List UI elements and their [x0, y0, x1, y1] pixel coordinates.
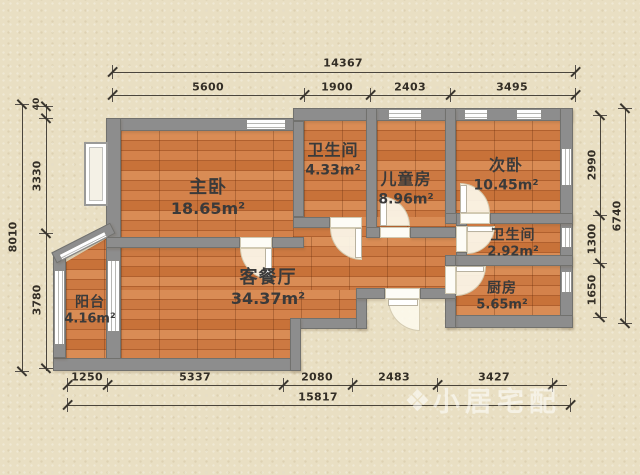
dim-tick — [15, 104, 29, 105]
dim-tick — [39, 118, 53, 119]
door-opening — [445, 266, 456, 294]
dim-line-left-total — [22, 104, 23, 371]
room-name: 厨房 — [476, 279, 527, 297]
room-area: 4.33m² — [305, 161, 360, 179]
room-label-bathroom-1: 卫生间 4.33m² — [305, 141, 360, 180]
dim-line-right-total — [625, 108, 626, 323]
dim-tick — [112, 65, 113, 79]
room-name: 卫生间 — [487, 226, 538, 244]
dim-tick — [352, 378, 353, 392]
window — [561, 271, 572, 293]
door-opening — [240, 237, 272, 248]
dim-line-left-segments — [46, 104, 47, 371]
dim-tick — [107, 378, 108, 392]
wall-children-right — [445, 108, 456, 217]
room-name: 主卧 — [171, 176, 245, 199]
room-label-balcony: 阳台 4.16m² — [64, 293, 115, 328]
wall-bottom-left — [53, 358, 301, 371]
floor-plan: 主卧 18.65m² 卫生间 4.33m² 儿童房 8.96m² 次卧 10.4… — [0, 0, 640, 475]
room-area: 8.96m² — [378, 190, 433, 208]
wall-entry-top-a — [356, 288, 385, 299]
wall-second-bottom-b — [490, 213, 573, 224]
room-label-living-dining: 客餐厅 34.37m² — [231, 266, 305, 310]
room-area: 5.65m² — [476, 298, 527, 315]
wall-children-bottom-b — [410, 227, 456, 238]
dim-label-left-total: 8010 — [7, 222, 20, 253]
dim-tick — [39, 368, 53, 369]
door-opening — [456, 226, 467, 252]
dim-tick — [593, 215, 607, 216]
room-area: 4.16m² — [64, 312, 115, 329]
dim-tick — [67, 378, 68, 392]
door-leaf — [355, 228, 362, 258]
room-name: 卫生间 — [305, 141, 360, 162]
dim-label: 3495 — [496, 81, 528, 94]
wall-master-right — [293, 121, 304, 217]
room-name: 儿童房 — [378, 170, 433, 191]
wall-bathroom1-right — [366, 108, 377, 228]
door-leaf — [460, 185, 467, 213]
dim-label-right-total: 6740 — [611, 201, 624, 232]
dim-tick — [618, 323, 632, 324]
room-label-children-room: 儿童房 8.96m² — [378, 170, 433, 209]
room-label-second-bedroom: 次卧 10.45m² — [473, 156, 538, 195]
room-label-master-bedroom: 主卧 18.65m² — [171, 176, 245, 220]
dim-label: 5337 — [179, 371, 211, 384]
dim-label: 2080 — [301, 371, 333, 384]
dim-label: 3780 — [31, 285, 44, 316]
window — [246, 119, 286, 130]
window — [561, 148, 572, 186]
room-name: 次卧 — [473, 156, 538, 177]
dim-tick — [15, 371, 29, 372]
dim-label: 1250 — [71, 371, 103, 384]
dim-tick — [283, 378, 284, 392]
wall-kitchen-left-a — [445, 255, 456, 266]
door-opening — [380, 227, 410, 238]
dim-tick — [570, 398, 571, 412]
wall-master-bottom-b — [272, 237, 304, 248]
dim-label: 2990 — [586, 150, 599, 181]
room-area: 18.65m² — [171, 199, 245, 220]
dim-label: 2403 — [394, 81, 426, 94]
room-label-bathroom-2: 卫生间 2.92m² — [487, 226, 538, 261]
dim-label: 1650 — [586, 275, 599, 306]
door-opening — [460, 213, 490, 224]
dim-tick — [618, 108, 632, 109]
dim-tick — [370, 88, 371, 102]
dim-label: 1300 — [586, 224, 599, 255]
room-area: 10.45m² — [473, 176, 538, 194]
entrance-door-leaf — [388, 299, 418, 306]
wall-entry-step-left — [290, 318, 301, 371]
window — [516, 109, 542, 120]
door-opening — [330, 217, 362, 228]
wall-master-bottom-a — [106, 237, 240, 248]
watermark: ❖小居宅配 — [404, 380, 561, 419]
room-area: 2.92m² — [487, 245, 538, 262]
dim-line-top-total — [112, 72, 575, 73]
wall-children-bottom-a — [366, 227, 380, 238]
dim-tick — [112, 88, 113, 102]
room-label-kitchen: 厨房 5.65m² — [476, 279, 527, 314]
window — [464, 109, 488, 120]
dim-tick — [450, 88, 451, 102]
bay-window — [84, 142, 108, 206]
dim-tick — [575, 65, 576, 79]
door-leaf — [456, 266, 484, 272]
watermark-logo-icon: ❖ — [404, 384, 433, 419]
wall-bathroom1-bottom — [293, 217, 330, 228]
dim-line-top-segments — [112, 95, 575, 96]
dim-label: 5600 — [192, 81, 224, 94]
entrance-door-opening — [385, 288, 420, 299]
watermark-text: 小居宅配 — [433, 387, 561, 418]
dim-tick — [593, 115, 607, 116]
wall-kitchen-left-b — [445, 294, 456, 328]
dim-tick — [67, 398, 68, 412]
dim-tick — [575, 88, 576, 102]
room-area: 34.37m² — [231, 289, 305, 310]
dim-tick — [39, 233, 53, 234]
dim-tick — [593, 317, 607, 318]
dim-label: 1900 — [321, 81, 353, 94]
room-name: 客餐厅 — [231, 266, 305, 289]
window — [561, 227, 572, 248]
dim-tick — [304, 88, 305, 102]
room-name: 阳台 — [64, 293, 115, 311]
bay-window-inner — [89, 147, 103, 201]
window — [388, 109, 422, 120]
dim-label: 40 — [32, 98, 42, 111]
wall-bottom-kitchen — [445, 315, 573, 328]
dim-label-bottom-total: 15817 — [298, 391, 338, 404]
dim-label: 3330 — [31, 161, 44, 192]
dim-label-top-total: 14367 — [323, 57, 363, 70]
dim-tick — [593, 263, 607, 264]
